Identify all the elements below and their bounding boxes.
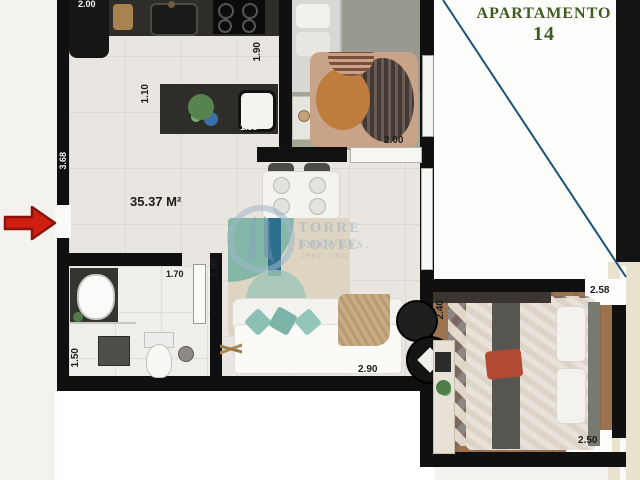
wall-left-top xyxy=(57,0,69,205)
bedroom1-lamp xyxy=(298,110,310,122)
dim-fridge-wall: 2.00 xyxy=(78,0,96,9)
dim-island-width: 1.10 xyxy=(140,84,151,103)
bedroom2-plant xyxy=(436,380,451,395)
plate-icon xyxy=(309,198,326,215)
plate-icon xyxy=(309,177,326,194)
plate-icon xyxy=(273,177,290,194)
sofa xyxy=(232,298,402,374)
dining-table xyxy=(262,171,340,219)
wall-bedroom2-top xyxy=(433,279,585,292)
wall-bathroom-top xyxy=(57,253,182,266)
burner-icon xyxy=(242,3,258,19)
dim-bedroom2-left: 2.40 xyxy=(435,300,446,319)
toilet-bowl xyxy=(146,344,172,378)
bedroom2-monitor xyxy=(435,352,451,372)
bathroom-sink xyxy=(77,274,115,320)
wall-bedroom2-right xyxy=(612,296,626,438)
rug-orange-blob xyxy=(316,68,370,130)
dried-plant xyxy=(220,330,242,368)
dim-bedroom2-bottom: 2.50 xyxy=(578,435,597,446)
bedroom2-red-pillow xyxy=(485,348,524,380)
cooktop xyxy=(213,0,265,34)
dim-living-width: 2.90 xyxy=(358,364,377,375)
bathroom-plant xyxy=(73,312,83,322)
dim-island-length: 1.35 xyxy=(240,122,258,132)
shower-glass-line xyxy=(70,322,136,324)
bathroom-door-leaf xyxy=(193,264,206,324)
unit-number: 14 xyxy=(462,23,626,46)
dim-bathroom-depth: 1.50 xyxy=(70,348,81,367)
area-label: 35.37 M² xyxy=(130,194,181,209)
bedroom2-pillow xyxy=(556,368,586,424)
wall-bottom-main xyxy=(57,376,435,391)
dim-entry-wall: 3.68 xyxy=(58,152,68,170)
dim-bedroom2-right: 2.58 xyxy=(590,285,609,296)
bedroom2-shelf-top xyxy=(433,292,551,303)
kitchen-sink xyxy=(150,3,198,36)
burner-icon xyxy=(218,3,234,19)
dim-bathroom-width: 1.70 xyxy=(166,269,184,279)
bedroom2-headboard xyxy=(588,302,600,446)
floor-plan: 2.00 1.35 1.10 1.90 2.00 35.37 M² xyxy=(0,0,640,480)
burner-icon xyxy=(218,19,232,33)
dim-bedroom1-width: 2.00 xyxy=(384,135,403,146)
unit-number-text: 14 xyxy=(533,23,555,45)
burner-icon xyxy=(242,19,256,33)
tv-console xyxy=(257,147,347,162)
island-plant xyxy=(188,94,214,120)
kitchen-faucet xyxy=(168,1,175,8)
rug-blue-bar xyxy=(268,218,281,276)
cutting-board xyxy=(113,4,133,30)
bedroom1-sliding-door xyxy=(350,147,422,163)
below-plan-background xyxy=(55,390,435,480)
wall-bedroom2-bottom xyxy=(420,452,626,467)
title-text: APARTAMENTO xyxy=(477,5,612,22)
page-title: APARTAMENTO xyxy=(462,5,626,23)
sofa-throw-blanket xyxy=(338,294,390,346)
bedroom1-rug xyxy=(310,52,418,148)
entrance-arrow-icon xyxy=(2,203,58,243)
bathroom-bin xyxy=(178,346,194,362)
dim-hallway: 1.65 xyxy=(209,258,220,277)
laundry-unit xyxy=(98,336,130,366)
wall-kitchen-bedroom1 xyxy=(279,0,292,160)
plate-icon xyxy=(273,198,290,215)
sliding-door-right xyxy=(421,168,433,270)
dim-kitchen-depth: 1.90 xyxy=(252,42,263,61)
bedroom1-pillow xyxy=(296,4,330,28)
bedroom2-pillow xyxy=(556,306,586,362)
